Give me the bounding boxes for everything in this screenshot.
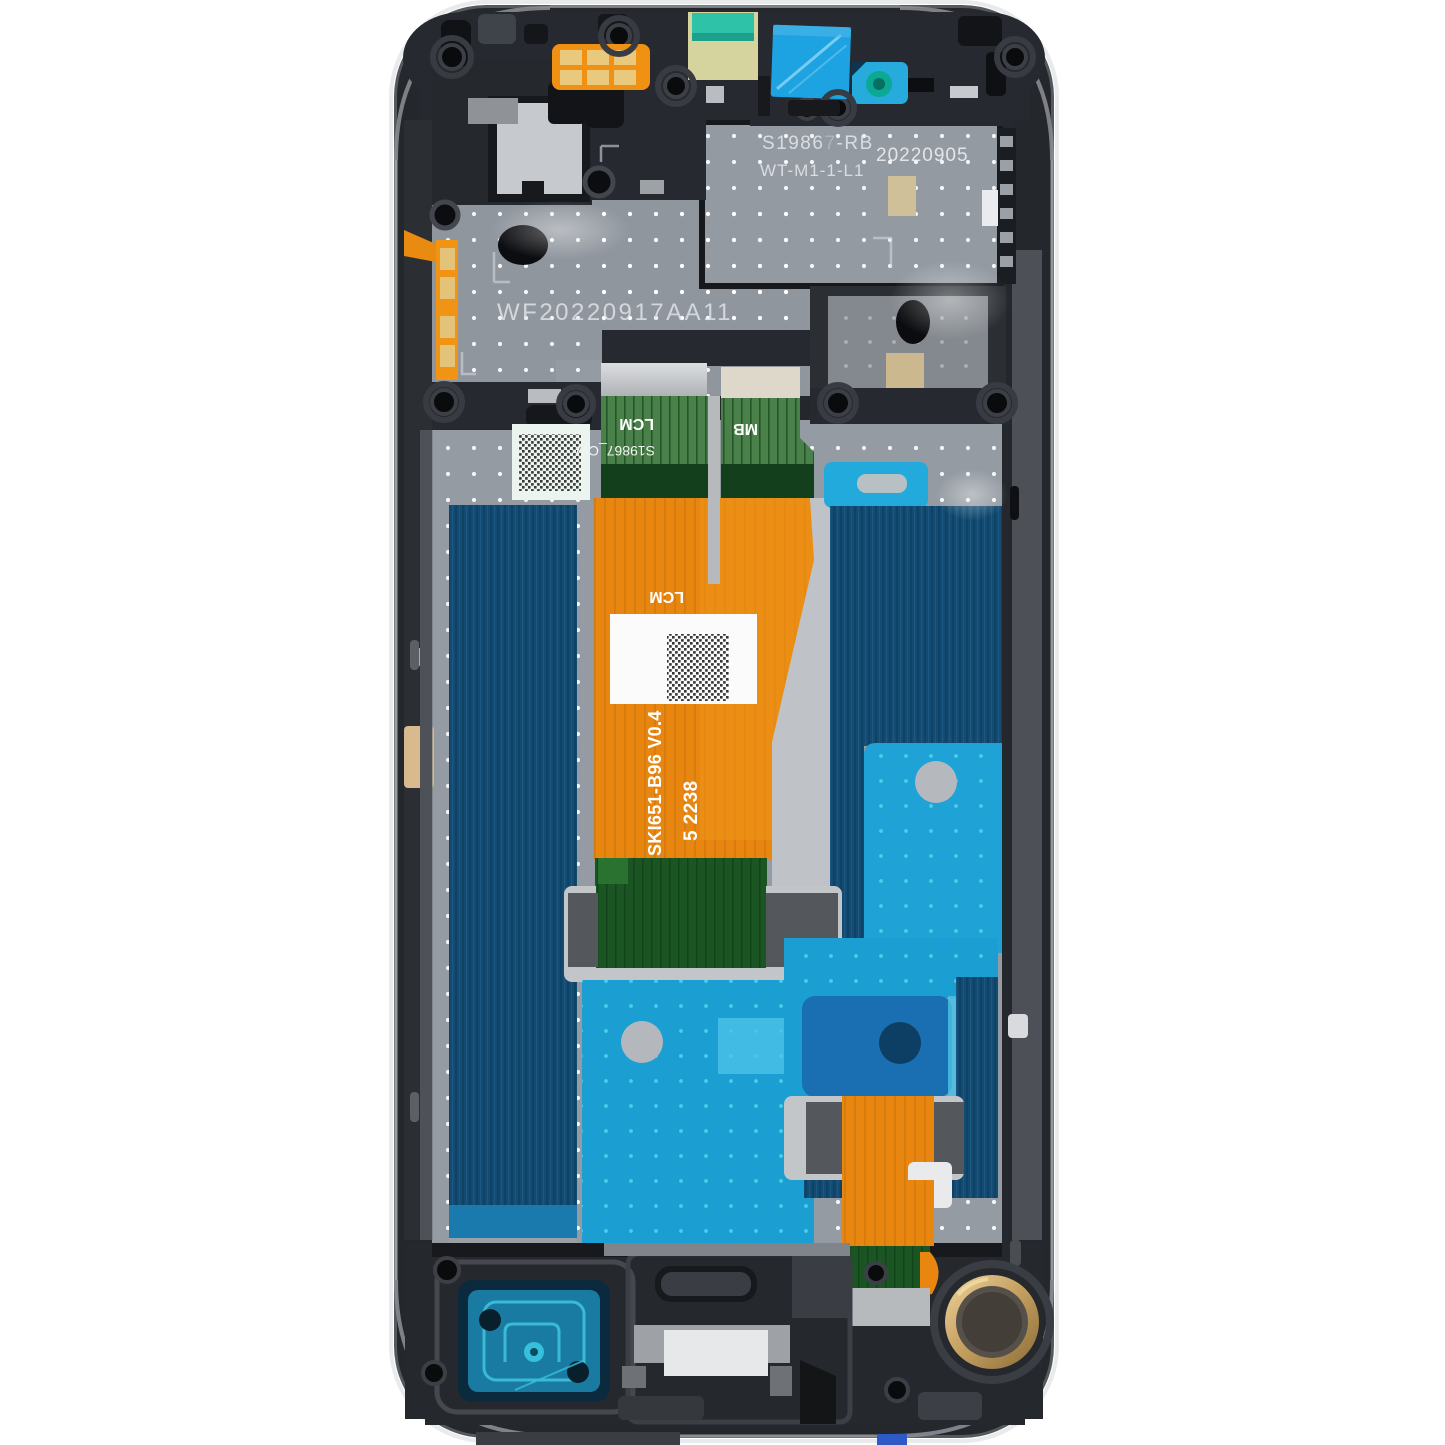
svg-text:S19867_CW: S19867_CW <box>575 443 655 459</box>
svg-text:WT-M1-1-L1: WT-M1-1-L1 <box>760 161 864 180</box>
svg-text:LCM: LCM <box>649 588 684 605</box>
svg-text:5 2238: 5 2238 <box>681 780 702 841</box>
svg-text:MB: MB <box>733 420 758 437</box>
svg-text:WF20220917AA11: WF20220917AA11 <box>497 299 733 326</box>
svg-text:SKI651-B96 V0.4: SKI651-B96 V0.4 <box>645 710 665 856</box>
svg-text:LCM: LCM <box>619 415 654 432</box>
svg-text:S19867-RB: S19867-RB <box>762 133 874 154</box>
svg-text:20220905: 20220905 <box>876 145 969 166</box>
